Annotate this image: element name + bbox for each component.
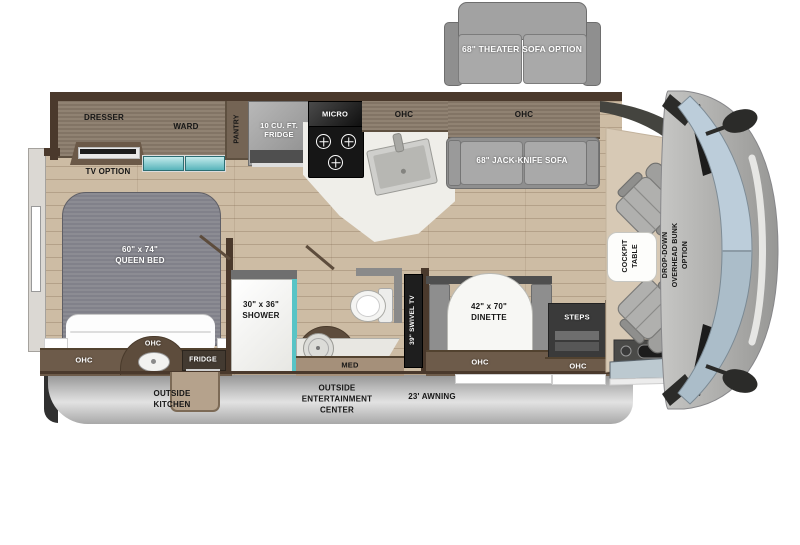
cockpit-table bbox=[607, 232, 657, 282]
bedroom-fridge bbox=[182, 350, 226, 371]
sofa-overhead-cabinet bbox=[448, 101, 600, 139]
fridge-sill bbox=[252, 163, 306, 167]
vanity-sink bbox=[138, 352, 170, 372]
jack-knife-sofa bbox=[446, 137, 600, 189]
rv-floor-plan: 68" THEATER SOFA OPTION OUTSIDE KITCHEN … bbox=[0, 0, 800, 545]
stove-burner-icon bbox=[316, 134, 331, 149]
sofa-seat-cushion bbox=[458, 34, 522, 84]
microwave bbox=[308, 101, 364, 128]
stove-burner-icon bbox=[341, 134, 356, 149]
toilet-bowl bbox=[350, 290, 386, 322]
shower-pan bbox=[231, 279, 293, 374]
stove-cooktop bbox=[308, 126, 364, 178]
ward-drawer bbox=[185, 156, 225, 171]
pantry-cabinet bbox=[225, 101, 250, 160]
sofa-seat-cushion bbox=[523, 34, 587, 84]
theater-sofa-option bbox=[444, 2, 599, 88]
stove-burner-icon bbox=[328, 155, 343, 170]
sofa-armrest bbox=[448, 140, 461, 186]
ward-drawer bbox=[143, 156, 184, 171]
sofa-cushion bbox=[460, 141, 523, 185]
outside-kitchen-box bbox=[170, 372, 220, 412]
bedroom-window bbox=[31, 206, 41, 292]
dinette-table bbox=[447, 273, 533, 351]
shower-top-wall bbox=[231, 270, 297, 279]
toilet-seat bbox=[356, 295, 380, 317]
fridge-base bbox=[250, 150, 308, 163]
tv-icon bbox=[80, 149, 136, 154]
swivel-tv bbox=[404, 274, 423, 368]
blanket-fold bbox=[70, 331, 211, 333]
console-dial bbox=[621, 346, 631, 356]
sofa-cushion bbox=[524, 141, 587, 185]
top-wall bbox=[50, 92, 622, 101]
storage-bay bbox=[455, 374, 552, 384]
drain-icon bbox=[151, 359, 156, 364]
kitchen-overhead-cabinet bbox=[362, 101, 448, 132]
slideout-corner bbox=[44, 148, 60, 156]
drain-icon bbox=[316, 346, 320, 350]
toilet-wall-side bbox=[394, 268, 402, 323]
